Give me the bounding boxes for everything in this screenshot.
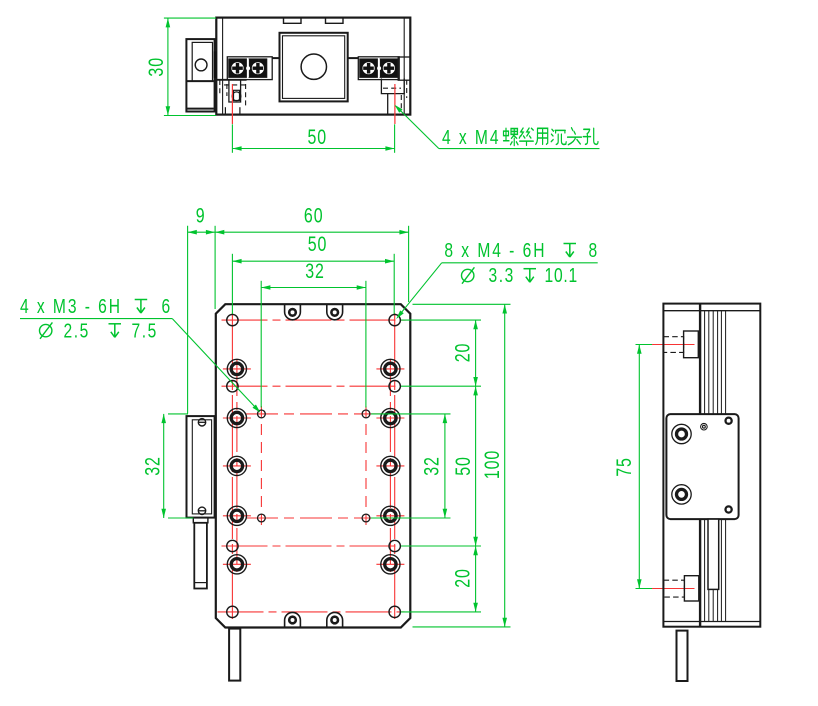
svg-text:7.5: 7.5 [132, 319, 158, 341]
svg-text:9: 9 [196, 203, 206, 227]
svg-text:100: 100 [480, 450, 504, 479]
svg-text:32: 32 [419, 456, 443, 476]
svg-text:32: 32 [305, 259, 325, 283]
svg-text:4 x M3 - 6H: 4 x M3 - 6H [20, 295, 122, 317]
svg-text:20: 20 [450, 343, 474, 363]
svg-text:4 x M4: 4 x M4 [442, 126, 500, 148]
svg-text:6: 6 [162, 295, 171, 317]
svg-text:8 x M4 - 6H: 8 x M4 - 6H [444, 239, 546, 261]
svg-text:10.1: 10.1 [545, 264, 578, 286]
svg-text:30: 30 [144, 57, 168, 77]
svg-text:8: 8 [589, 239, 598, 261]
svg-text:3.3: 3.3 [489, 264, 515, 286]
svg-text:50: 50 [308, 125, 328, 149]
svg-text:75: 75 [612, 457, 636, 477]
svg-text:50: 50 [451, 456, 475, 476]
svg-text:60: 60 [304, 203, 324, 227]
svg-text:2.5: 2.5 [64, 319, 90, 341]
svg-text:20: 20 [450, 568, 474, 588]
svg-text:50: 50 [308, 232, 328, 256]
svg-text:32: 32 [140, 456, 164, 476]
